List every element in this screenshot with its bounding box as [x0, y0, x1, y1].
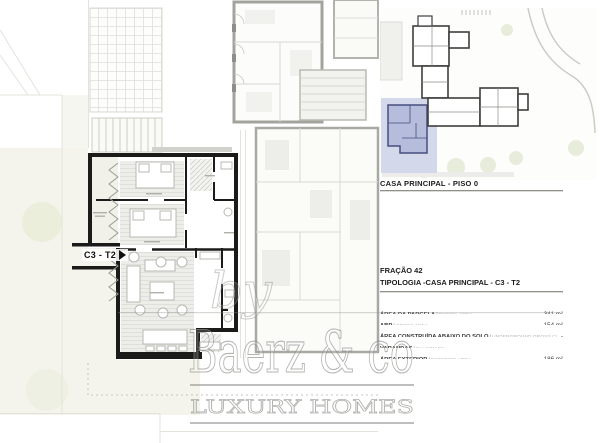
unit-info: FRAÇÃO 42 TIPOLOGIA -CASA PRINCIPAL - C3…: [380, 265, 564, 289]
table-row: ABP|GROSS AREA 154 m²: [380, 314, 563, 325]
divider: [380, 291, 563, 293]
table-row: ÁREA DA PARCELA|PARCEL AREA 341 m²: [380, 303, 563, 314]
table-row: ÁREA EXTERIOR|EXTERIOR AREA 186 m²: [380, 348, 563, 359]
page: C3 - T2: [0, 0, 600, 443]
row-value: -: [561, 333, 563, 336]
highlighted-unit: [388, 105, 427, 153]
unit-label: C3 - T2: [82, 249, 128, 261]
row-label-en: EXTERIOR AREA: [431, 358, 471, 359]
unit-arrow-icon: [119, 250, 126, 260]
row-value: 341 m²: [544, 311, 563, 314]
row-value: 186 m²: [544, 356, 563, 359]
label-separator: |: [428, 357, 430, 359]
tree: [22, 202, 62, 242]
area-table: ÁREA DA PARCELA|PARCEL AREA 341 m² ABP|G…: [380, 303, 563, 359]
table-row: ÁREA CONSTRUÍDA ABAIXO DO SOLO|UNDERGROU…: [380, 325, 563, 336]
fraction-title: FRAÇÃO 42: [380, 265, 564, 277]
adjacent-strip-topright: [334, 0, 378, 58]
site-plan: [0, 0, 380, 443]
keyplan-caption: CASA PRINCIPAL - PISO 0: [380, 179, 564, 188]
unit-label-text: C3 - T2: [84, 250, 116, 260]
table-row: VARANDAS|BALCONIES -: [380, 337, 563, 348]
row-label-pt: ÁREA EXTERIOR: [380, 357, 427, 359]
stairs: [92, 118, 162, 152]
divider: [380, 190, 563, 192]
row-value: -: [561, 345, 563, 348]
key-plan: [380, 8, 597, 180]
pergola-grid: [90, 8, 162, 112]
typology-title: TIPOLOGIA -CASA PRINCIPAL - C3 - T2: [380, 277, 564, 289]
